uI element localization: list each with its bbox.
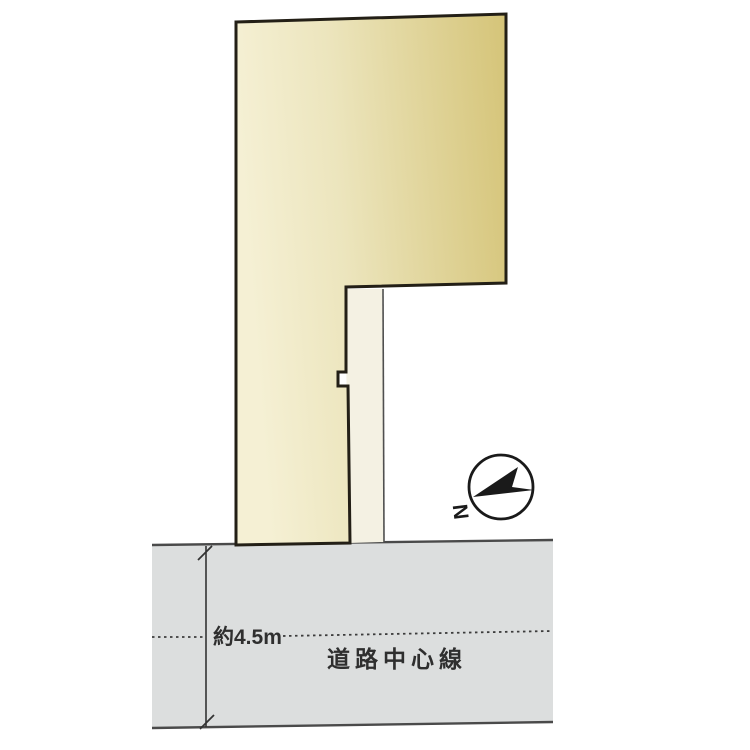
site-plan-drawing: 約4.5m 道路中心線 N (0, 0, 750, 750)
road-centerline-label: 道路中心線 (327, 646, 467, 672)
site-plan-page: 約4.5m 道路中心線 N (0, 0, 750, 750)
setback-strip-right-border (383, 289, 384, 542)
north-compass-icon: N (448, 455, 534, 521)
road-width-label: 約4.5m (213, 625, 282, 649)
north-label: N (448, 503, 473, 521)
